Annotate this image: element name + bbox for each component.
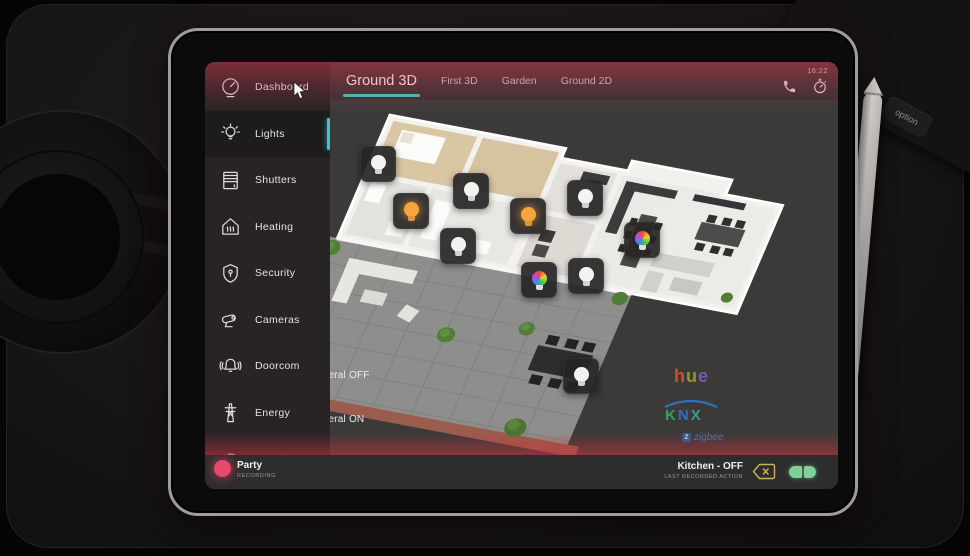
app-screen: General OFF General ON hue KNX Z zigbee … <box>205 62 838 489</box>
zigbee-badge: Z <box>682 433 691 442</box>
bulb-glyph <box>521 207 536 222</box>
sidebar-item-dashboard[interactable]: Dashboard <box>205 64 330 111</box>
power-toggle[interactable] <box>789 466 816 478</box>
bulb-glyph <box>578 189 593 204</box>
general-on-button[interactable]: General ON <box>330 414 364 425</box>
zigbee-logo: Z zigbee <box>682 432 723 443</box>
last-action: Kitchen - OFF <box>677 461 743 472</box>
sidebar-item-energy[interactable]: Energy <box>205 390 330 437</box>
sidebar-item-label: Lights <box>255 128 285 140</box>
bulb-glyph <box>532 271 547 286</box>
svg-text:KNX: KNX <box>665 407 703 424</box>
tab-ground-2d[interactable]: Ground 2D <box>561 75 612 87</box>
cloud-icon <box>218 447 242 455</box>
hue-logo: hue <box>674 366 709 387</box>
sidebar-item-label: Shutters <box>255 174 297 186</box>
light-marker-1-white[interactable] <box>360 146 396 182</box>
sidebar-item-label: Dashboard <box>255 81 309 93</box>
bulb-glyph <box>404 202 419 217</box>
light-marker-8-color[interactable] <box>521 262 557 298</box>
status-bar: Party RECORDING Kitchen - OFF LAST RECOR… <box>205 455 838 489</box>
scene-name: Party <box>237 460 262 471</box>
heating-icon <box>218 215 242 239</box>
tab-garden[interactable]: Garden <box>502 75 537 87</box>
light-marker-3-white[interactable] <box>453 173 489 209</box>
camera-icon <box>218 308 242 332</box>
sidebar-item-cameras[interactable]: Cameras <box>205 297 330 344</box>
tablet: General OFF General ON hue KNX Z zigbee … <box>168 28 858 516</box>
bulb-glyph <box>574 367 589 382</box>
light-marker-5-orange[interactable] <box>510 198 546 234</box>
pylon-icon <box>218 401 242 425</box>
undo-backspace-icon[interactable] <box>752 463 776 480</box>
light-marker-6-white[interactable] <box>567 180 603 216</box>
sidebar-item-label: Heating <box>255 221 293 233</box>
sidebar-item-heating[interactable]: Heating <box>205 204 330 251</box>
sidebar-item-doorcom[interactable]: Doorcom <box>205 343 330 390</box>
shield-icon <box>218 261 242 285</box>
bulb-glyph <box>451 237 466 252</box>
bulb-glyph <box>579 267 594 282</box>
bell-icon <box>218 354 242 378</box>
phone-icon[interactable] <box>782 79 797 94</box>
light-marker-9-white[interactable] <box>568 258 604 294</box>
general-off-button[interactable]: General OFF <box>330 370 370 381</box>
sidebar-menu: Dashboard Lights Shutters Heating Securi… <box>205 62 330 455</box>
light-marker-10-white[interactable] <box>563 358 599 394</box>
stopwatch-icon[interactable] <box>812 78 828 94</box>
shutters-icon <box>218 168 242 192</box>
sidebar-item-label: Doorcom <box>255 360 300 372</box>
sidebar-item-label: Cameras <box>255 314 300 326</box>
coffee <box>0 174 120 300</box>
light-marker-4-white[interactable] <box>440 228 476 264</box>
sidebar-item-shutters[interactable]: Shutters <box>205 157 330 204</box>
last-action-label: LAST RECORDED ACTION <box>664 474 743 480</box>
sidebar-item-label: Security <box>255 267 295 279</box>
desk-scene: control option <box>0 0 970 556</box>
scene-status: RECORDING <box>237 473 276 479</box>
bulb-glyph <box>464 182 479 197</box>
sidebar-item-label: Energy <box>255 407 290 419</box>
clock: 16:22 <box>782 66 828 75</box>
recording-indicator[interactable] <box>214 460 231 477</box>
bulb-glyph <box>635 231 650 246</box>
sidebar-item-lights[interactable]: Lights <box>205 111 330 158</box>
tab-ground-3d[interactable]: Ground 3D <box>346 73 417 89</box>
tab-first-3d[interactable]: First 3D <box>441 75 478 87</box>
light-marker-2-orange[interactable] <box>393 193 429 229</box>
sidebar-item-weather[interactable]: Weather <box>205 436 330 455</box>
knx-logo: KNX <box>660 398 722 424</box>
gauge-icon <box>218 75 242 99</box>
screen-top-right: 16:22 <box>782 66 828 94</box>
sidebar-item-security[interactable]: Security <box>205 250 330 297</box>
light-marker-7-color[interactable] <box>624 222 660 258</box>
bulb-glyph <box>371 155 386 170</box>
bulb-icon <box>218 122 242 146</box>
view-tabs: Ground 3DFirst 3DGardenGround 2D <box>330 62 838 100</box>
